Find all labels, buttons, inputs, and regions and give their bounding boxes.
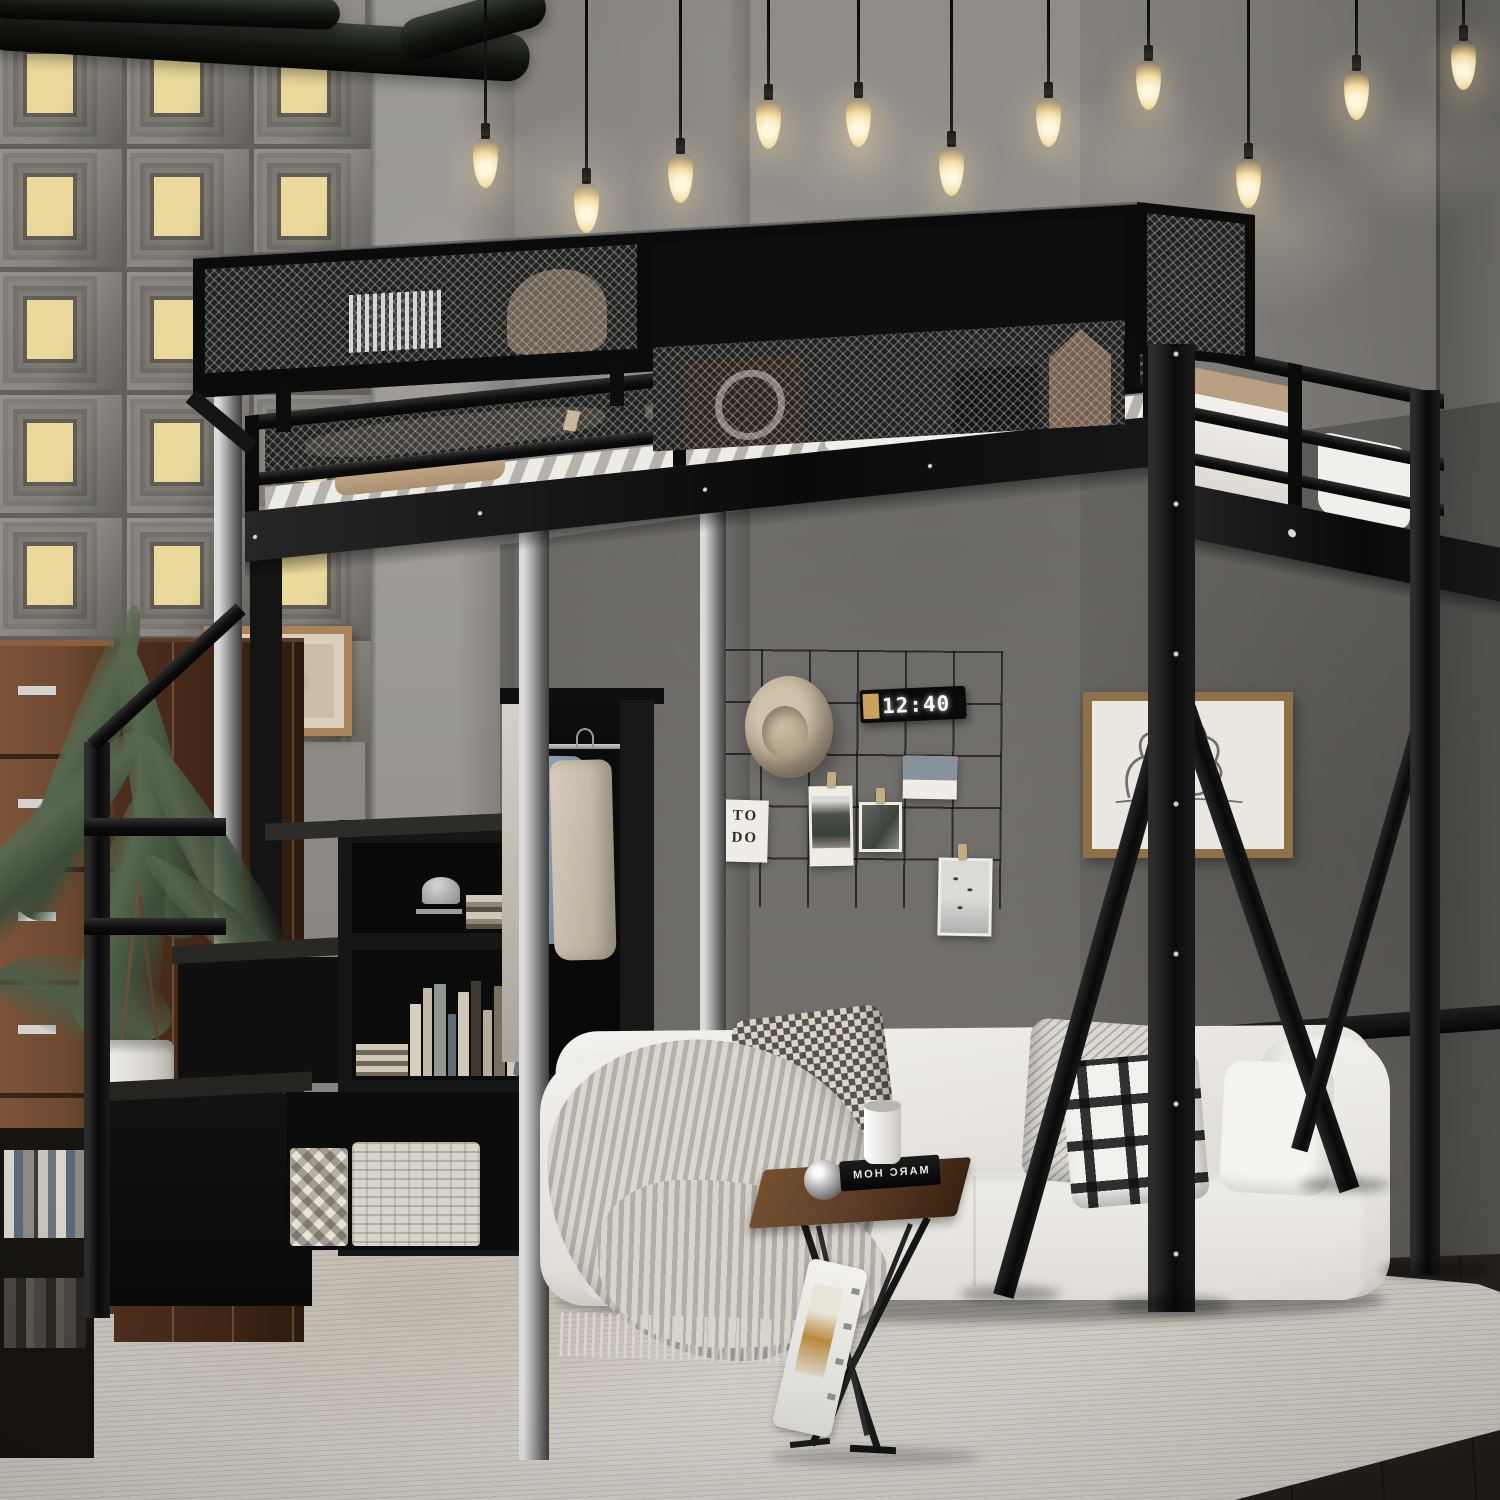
shelf-support — [276, 386, 291, 432]
clothespin — [958, 844, 968, 859]
blanket-tag — [563, 410, 581, 432]
shelf-mesh-panel-left — [205, 244, 637, 373]
house-decor-silhouette — [1049, 327, 1111, 429]
bed-end-post-far-right — [1410, 390, 1440, 1275]
relief-tile — [0, 395, 122, 513]
cup-rim — [864, 1100, 901, 1112]
relief-tile — [127, 149, 249, 267]
floor-shadow — [1110, 1296, 1230, 1314]
basket-silhouette — [953, 365, 1039, 434]
overhead-shelf-side — [1137, 202, 1255, 367]
chevron-basket — [290, 1148, 348, 1246]
book — [423, 988, 432, 1076]
stair-rail-bar — [84, 918, 226, 935]
book — [410, 1004, 421, 1076]
hat-crown — [762, 706, 808, 758]
relief-tile — [0, 272, 122, 390]
pendant-bulb — [1147, 0, 1150, 46]
shelf-cubby-books — [352, 950, 516, 1080]
book — [471, 981, 481, 1076]
desk-lamp-dome — [422, 877, 460, 904]
book — [458, 992, 469, 1076]
clock-time: 12:40 — [882, 691, 951, 718]
end-rail-post — [1288, 362, 1302, 507]
photo-image — [940, 861, 989, 934]
todo-line-1: TO — [722, 805, 769, 828]
todo-line-2: DO — [722, 827, 769, 850]
photo-image — [811, 796, 850, 849]
hanger-hook — [576, 728, 594, 748]
clock-gold-chip — [863, 693, 880, 719]
clothespin — [876, 788, 885, 803]
todo-card: TO DO — [721, 799, 769, 862]
floor-shadow — [1380, 1262, 1490, 1278]
hoodie-silhouette — [507, 266, 607, 356]
clothespin — [827, 772, 837, 787]
postcard — [903, 756, 958, 800]
relief-tile — [0, 518, 122, 636]
stair-bottom-storage-box — [100, 1094, 312, 1306]
floor-shadow — [1300, 1178, 1390, 1192]
pendant-bulb — [585, 0, 588, 169]
tv-static-silhouette — [345, 285, 445, 357]
radio-silhouette — [683, 355, 805, 450]
shelf-books — [4, 1150, 86, 1238]
table-shadow — [770, 1448, 980, 1466]
radio-speaker-ring — [715, 368, 785, 442]
post-screws — [1172, 344, 1180, 1312]
book-title-mirrored: MARC HOM — [851, 1164, 929, 1181]
seat-seam — [973, 1176, 976, 1286]
bottle-silhouette — [255, 302, 301, 369]
beam-screws — [1288, 528, 1296, 538]
stair-rail-bar — [84, 818, 226, 836]
pendant-bulb — [1247, 0, 1250, 144]
pendant-bulb — [950, 0, 953, 132]
pendant-bulb — [1047, 0, 1050, 83]
shelf-support — [610, 362, 624, 406]
pendant-bulb — [484, 0, 487, 124]
photo-image — [862, 805, 899, 849]
pendant-bulb — [1462, 0, 1465, 26]
flat-book-stack — [356, 1044, 408, 1076]
desk-lamp-base — [416, 909, 462, 914]
clipped-photo-forest — [808, 786, 853, 867]
book — [434, 984, 446, 1076]
stair-riser — [178, 957, 364, 1083]
white-cup — [864, 1100, 901, 1164]
pendant-bulb — [767, 0, 770, 85]
book-row — [410, 972, 514, 1076]
wall-light-glow — [1300, 60, 1500, 250]
vase-silhouette — [1169, 248, 1199, 313]
book — [483, 1010, 492, 1076]
digital-wall-clock: 12:40 — [859, 686, 966, 724]
postcard-photo — [903, 756, 957, 781]
hanging-jacket-beige — [549, 759, 616, 961]
clipped-photo-street — [859, 802, 902, 852]
pendant-bulb — [679, 0, 682, 139]
pendant-bulb — [857, 0, 860, 83]
bed-post-mid-left — [519, 520, 549, 1460]
book — [448, 1014, 456, 1076]
throw-fringe — [559, 1312, 804, 1364]
shelf-support — [1124, 338, 1140, 390]
shelf-cubby-top — [352, 843, 516, 933]
shelf-divider — [637, 243, 653, 348]
metal-sphere-decor — [804, 1160, 844, 1200]
shelf-cubby-baskets — [286, 1092, 526, 1250]
bed-corner-post-right — [1148, 344, 1195, 1312]
clipped-photo-birds — [937, 858, 992, 937]
pendant-bulb — [1355, 0, 1358, 56]
corner-bookshelf — [0, 1128, 94, 1458]
floor-shadow — [960, 1286, 1060, 1302]
room-scene: 12:40 TO DO — [0, 0, 1500, 1500]
wicker-basket — [352, 1142, 480, 1246]
relief-tile — [0, 149, 122, 267]
shelf-books-lower — [4, 1278, 86, 1348]
